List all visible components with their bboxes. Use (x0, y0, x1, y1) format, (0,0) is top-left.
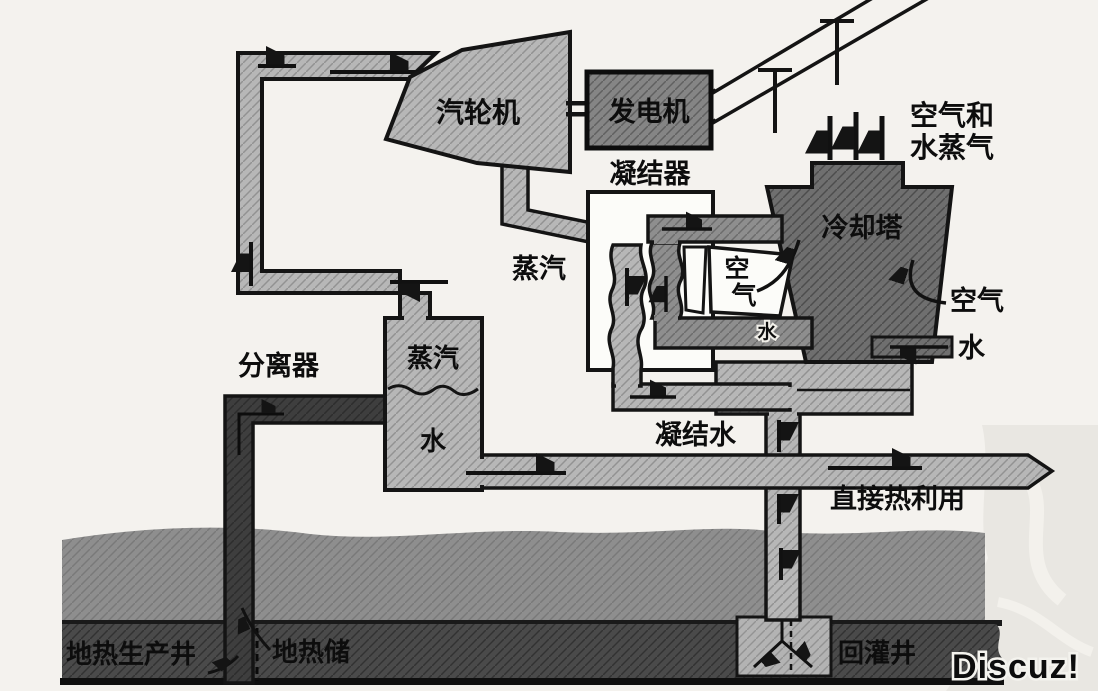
water-small-label: 水 (757, 321, 777, 343)
separator-unit (385, 314, 487, 490)
reservoir-label: 地热储 (272, 637, 350, 667)
condenser-label: 凝结器 (610, 159, 692, 189)
ground-upper-layer (62, 528, 985, 624)
injection-well-label: 回灌井 (838, 638, 916, 668)
pipe-junction-patch (769, 458, 797, 485)
reinjection-vertical-pipe (766, 402, 800, 620)
generator-label: 发电机 (608, 96, 690, 127)
steam-condensing-pipe (609, 245, 646, 388)
cooling-pipe-patch (654, 239, 678, 244)
separator-water-label: 水 (420, 426, 447, 456)
steam-pipe-patch (616, 380, 638, 388)
cooling-pipe-patch (654, 315, 678, 321)
reservoir-bottom-line (60, 678, 1004, 685)
condensate-junction-patch (768, 387, 797, 408)
production-well-label: 地热生产井 (66, 639, 196, 669)
main-water-pipe (482, 455, 1052, 488)
air-vapor-label-line1: 空气和 (910, 99, 994, 131)
separator-steam-label: 蒸汽 (407, 343, 459, 373)
geothermal-power-plant-diagram: 汽轮机 发电机 凝结器 蒸汽 分离器 蒸汽 水 冷却塔 空 气 水 空气 水 空… (0, 0, 1098, 691)
water-right-label: 水 (958, 333, 986, 363)
air-box-label-char2: 气 (730, 281, 756, 310)
turbine-label: 汽轮机 (436, 97, 520, 128)
air-box-label-char1: 空 (724, 254, 749, 283)
injection-well-block (737, 617, 831, 676)
cooling-tower-label: 冷却塔 (822, 213, 904, 243)
separator-label: 分离器 (238, 350, 320, 381)
air-right-label: 空气 (950, 285, 1004, 316)
cooling-bottom-channel (655, 318, 812, 348)
steam-pipe-label: 蒸汽 (512, 254, 566, 284)
air-vapor-label-line2: 水蒸气 (910, 132, 994, 163)
diagram-canvas: 汽轮机 发电机 凝结器 蒸汽 分离器 蒸汽 水 冷却塔 空 气 水 空气 水 空… (0, 0, 1098, 691)
discuz-watermark: Discuz! (952, 648, 1080, 686)
condensate-label: 凝结水 (655, 420, 737, 450)
steam-wavy-pipe (609, 245, 646, 386)
separator-riser-patch (404, 314, 426, 322)
air-gap-strip (684, 247, 706, 313)
direct-heat-use-label: 直接热利用 (830, 484, 965, 514)
